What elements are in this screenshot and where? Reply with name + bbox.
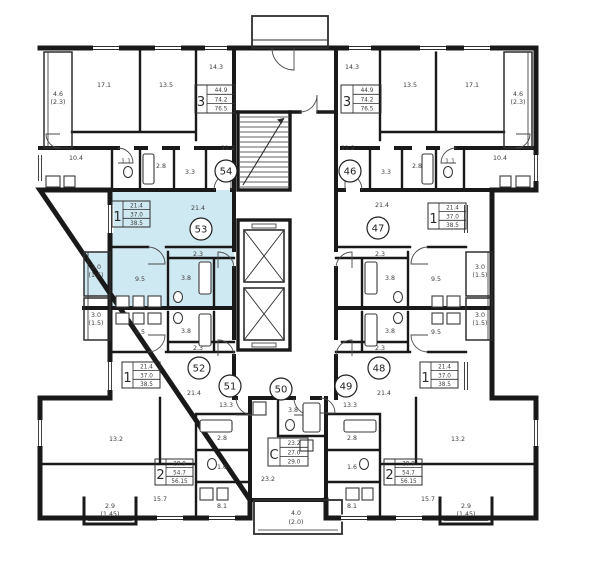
svg-text:37.0: 37.0: [130, 212, 143, 218]
entrance-canopy: [252, 16, 328, 48]
svg-text:1: 1: [123, 371, 131, 386]
apartment-46-badge[interactable]: 46: [339, 160, 361, 182]
svg-text:38.5: 38.5: [130, 221, 143, 227]
room-area-label: 11.2: [221, 145, 235, 152]
window: [420, 45, 446, 52]
room-area-label: (1.45): [457, 511, 476, 518]
svg-text:47: 47: [372, 224, 385, 235]
room-area-label: 9.5: [135, 329, 145, 336]
room-area-label: 3.0: [475, 264, 485, 271]
svg-text:38.5: 38.5: [140, 382, 153, 388]
room-area-label: 14.3: [209, 64, 223, 71]
room-area-label: 9.5: [431, 276, 441, 283]
floor-plan-page: 17.1 13.5 14.3 4.6 (2.3) 10.4 1.1 2.8 3.…: [0, 0, 600, 573]
svg-text:37.0: 37.0: [140, 373, 153, 379]
svg-text:52: 52: [193, 364, 206, 375]
svg-text:38.5: 38.5: [438, 382, 451, 388]
room-area-label: 17.1: [97, 82, 111, 89]
bathtub-icon: [422, 154, 433, 184]
svg-text:37.0: 37.0: [438, 373, 451, 379]
svg-text:46: 46: [344, 167, 357, 178]
floor-plan: 17.1 13.5 14.3 4.6 (2.3) 10.4 1.1 2.8 3.…: [0, 0, 600, 573]
room-area-label: 11.2: [341, 145, 355, 152]
room-area-label: 3.8: [181, 275, 191, 282]
window: [155, 45, 181, 52]
svg-text:28.9: 28.9: [402, 462, 415, 468]
room-area-label: 10.4: [69, 155, 83, 162]
svg-text:28.9: 28.9: [173, 462, 186, 468]
toilet-icon: [174, 292, 183, 303]
room-area-label: 4.0: [291, 510, 301, 517]
svg-text:3: 3: [343, 95, 351, 110]
fridge-icon: [148, 313, 161, 324]
room-area-label: 3.0: [475, 312, 485, 319]
svg-text:56.15: 56.15: [171, 479, 188, 485]
bathtub-icon: [143, 154, 154, 184]
room-area-label: 3.8: [385, 275, 395, 282]
svg-text:74.2: 74.2: [215, 97, 228, 103]
toilet-icon: [394, 292, 403, 303]
elevator-door: [252, 343, 276, 347]
washer-icon: [253, 402, 266, 415]
room-area-label: 21.4: [377, 390, 391, 397]
room-area-label: 10.4: [493, 155, 507, 162]
svg-text:44.9: 44.9: [215, 88, 228, 94]
stove-icon: [116, 296, 129, 307]
room-area-label: 1.1: [445, 158, 455, 165]
room-area-label: 21.4: [187, 390, 201, 397]
apartment-53-badge[interactable]: 53: [190, 218, 212, 240]
room-area-label: 13.3: [343, 402, 357, 409]
svg-text:1: 1: [429, 212, 437, 227]
room-area-label: 2.8: [217, 435, 227, 442]
room-area-label: 2.3: [375, 251, 385, 258]
room-area-label: 9.5: [431, 329, 441, 336]
window: [107, 362, 114, 390]
room-area-label: (1.45): [101, 511, 120, 518]
elevator-shaft: [238, 220, 290, 350]
stove-icon: [116, 313, 129, 324]
room-area-label: 13.2: [109, 436, 123, 443]
room-area-label: 3.0: [91, 264, 101, 271]
window: [533, 420, 540, 446]
room-area-label: 1.1: [121, 158, 131, 165]
room-area-label: 2.9: [105, 503, 115, 510]
svg-text:2: 2: [385, 468, 393, 483]
sink-icon: [432, 313, 443, 324]
room-area-label: 2.8: [156, 163, 166, 170]
window: [205, 45, 227, 52]
svg-text:76.5: 76.5: [215, 107, 228, 113]
room-area-label: 2.3: [193, 251, 203, 258]
apartment-47-badge[interactable]: 47: [367, 217, 389, 239]
fridge-icon: [148, 296, 161, 307]
room-area-label: 4.6: [53, 91, 63, 98]
bathtub-icon: [344, 420, 376, 432]
window: [93, 45, 119, 52]
room-area-label: 1.6: [347, 464, 357, 471]
room-area-label: 3.8: [181, 328, 191, 335]
area-table-48: 1 21.4 37.0 38.5: [420, 362, 458, 388]
room-area-label: 21.4: [191, 205, 205, 212]
svg-text:37.0: 37.0: [446, 214, 459, 220]
room-area-label: 15.7: [153, 496, 167, 503]
room-area-label: 3.8: [385, 328, 395, 335]
svg-text:54: 54: [220, 167, 233, 178]
svg-text:54.7: 54.7: [402, 470, 415, 476]
room-area-label: 3.0: [91, 312, 101, 319]
room-area-label: 13.2: [451, 436, 465, 443]
elevator-door: [252, 224, 276, 228]
sink-icon: [362, 488, 373, 500]
apartment-54-badge[interactable]: 54: [215, 160, 237, 182]
sink-icon: [64, 176, 75, 187]
room-area-label: (1.5): [89, 320, 104, 327]
room-area-label: 13.5: [403, 82, 417, 89]
apartment-52-badge[interactable]: 52: [188, 357, 210, 379]
room-area-label: 2.3: [375, 345, 385, 352]
area-table-52: 1 21.4 37.0 38.5: [122, 362, 160, 388]
svg-text:48: 48: [373, 364, 386, 375]
sink-icon: [133, 313, 144, 324]
sink-icon: [133, 296, 144, 307]
stove-icon: [46, 176, 60, 187]
room-area-label: 21.4: [375, 202, 389, 209]
bathtub-icon: [365, 262, 377, 294]
room-area-label: (1.5): [473, 320, 488, 327]
window: [37, 155, 44, 181]
svg-text:53: 53: [195, 225, 208, 236]
stove-icon: [346, 488, 359, 500]
room-area-label: 1.6: [217, 464, 227, 471]
room-area-label: (2.3): [511, 99, 526, 106]
room-area-label: (1.5): [89, 272, 104, 279]
sink-icon: [217, 488, 228, 500]
room-area-label: 14.3: [345, 64, 359, 71]
room-area-label: (2.3): [51, 99, 66, 106]
svg-text:21.4: 21.4: [438, 365, 451, 371]
bathtub-icon: [303, 403, 320, 432]
room-area-label: 2.3: [193, 345, 203, 352]
room-area-label: 23.2: [261, 476, 275, 483]
svg-text:56.15: 56.15: [400, 479, 417, 485]
area-table-54: 3 44.9 74.2 76.5: [195, 85, 235, 113]
staircase: [238, 112, 290, 190]
window: [463, 362, 470, 390]
bathtub-icon: [199, 262, 211, 294]
room-area-label: 8.1: [217, 503, 227, 510]
area-table-46: 3 44.9 74.2 76.5: [341, 85, 381, 113]
bathtub-icon: [199, 314, 211, 346]
window: [349, 45, 371, 52]
svg-text:44.9: 44.9: [361, 88, 374, 94]
stove-icon: [516, 176, 530, 187]
sink-icon: [432, 296, 443, 307]
room-area-label: 2.8: [347, 435, 357, 442]
room-area-label: 13.3: [219, 402, 233, 409]
svg-text:3: 3: [197, 95, 205, 110]
window: [157, 515, 183, 522]
toilet-icon: [360, 459, 369, 470]
apartment-48-badge[interactable]: 48: [368, 357, 390, 379]
room-area-label: (2.0): [289, 519, 304, 526]
stove-icon: [447, 313, 460, 324]
window: [341, 515, 367, 522]
room-area-label: 3.3: [185, 169, 195, 176]
room-area-label: 13.5: [159, 82, 173, 89]
room-area-label: 15.7: [421, 496, 435, 503]
svg-text:74.2: 74.2: [361, 97, 374, 103]
window: [37, 420, 44, 446]
room-area-label: (1.5): [473, 272, 488, 279]
room-area-label: 3.3: [381, 169, 391, 176]
toilet-icon: [208, 459, 217, 470]
svg-text:1: 1: [421, 371, 429, 386]
sink-icon: [500, 176, 511, 187]
room-area-label: 2.9: [461, 503, 471, 510]
elevator-car: [244, 288, 284, 340]
svg-text:29.0: 29.0: [288, 460, 301, 466]
window: [533, 155, 540, 181]
apartment-51-badge[interactable]: 51: [219, 375, 241, 397]
room-area-label: 3.8: [288, 407, 298, 414]
svg-text:С: С: [269, 448, 278, 463]
svg-text:27.0: 27.0: [288, 450, 301, 456]
room-area-label: 9.5: [135, 276, 145, 283]
toilet-icon: [394, 313, 403, 324]
svg-text:1: 1: [113, 210, 121, 225]
stove-icon: [200, 488, 213, 500]
svg-text:2: 2: [156, 468, 164, 483]
stove-icon: [300, 440, 313, 451]
elevator-car: [244, 230, 284, 282]
svg-text:21.4: 21.4: [446, 206, 459, 212]
bathtub-icon: [200, 420, 232, 432]
toilet-icon: [286, 420, 295, 431]
window: [396, 515, 422, 522]
svg-text:51: 51: [224, 382, 237, 393]
stove-icon: [447, 296, 460, 307]
toilet-icon: [124, 167, 133, 178]
room-area-label: 17.1: [465, 82, 479, 89]
toilet-icon: [444, 167, 453, 178]
toilet-icon: [174, 313, 183, 324]
apartment-49-badge[interactable]: 49: [335, 375, 357, 397]
room-area-label: 4.6: [513, 91, 523, 98]
svg-text:23.2: 23.2: [288, 441, 301, 447]
svg-text:21.4: 21.4: [130, 204, 143, 210]
svg-text:38.5: 38.5: [446, 223, 459, 229]
svg-text:54.7: 54.7: [173, 470, 186, 476]
window: [464, 45, 490, 52]
svg-text:50: 50: [275, 385, 288, 396]
svg-text:21.4: 21.4: [140, 365, 153, 371]
area-table-47: 1 21.4 37.0 38.5: [428, 203, 466, 229]
room-area-label: 2.8: [412, 163, 422, 170]
room-area-label: 8.1: [347, 503, 357, 510]
apartment-50-badge[interactable]: 50: [270, 378, 292, 400]
svg-text:49: 49: [340, 382, 353, 393]
bathtub-icon: [365, 314, 377, 346]
window: [209, 515, 235, 522]
svg-text:76.5: 76.5: [361, 107, 374, 113]
